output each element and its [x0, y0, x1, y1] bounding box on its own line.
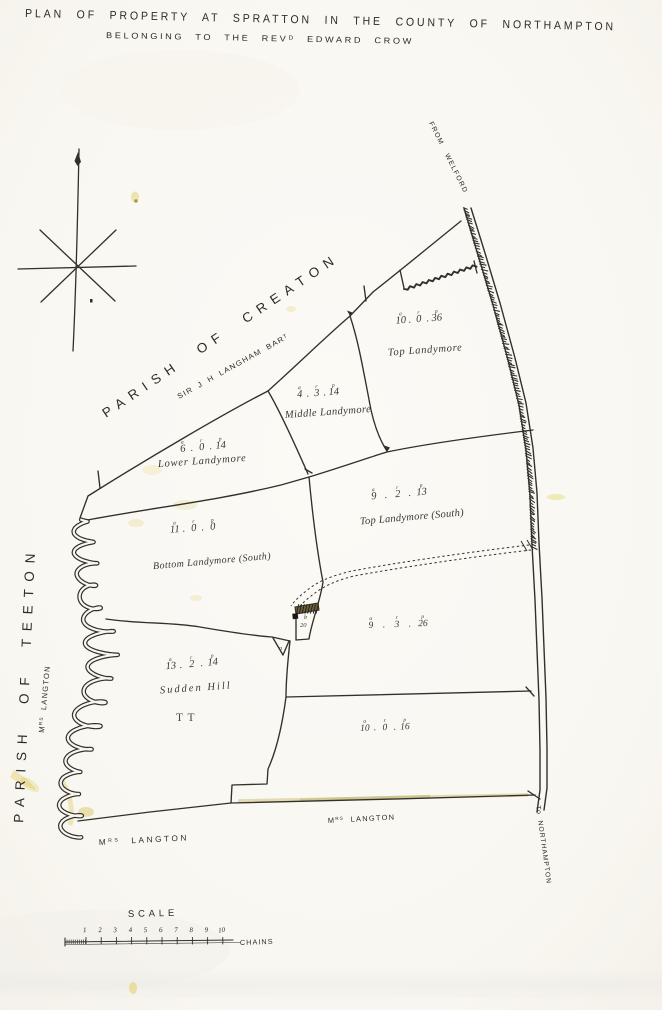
svg-text:a: a — [363, 719, 366, 725]
svg-text:TT: TT — [176, 712, 199, 724]
svg-text:.: . — [409, 620, 412, 630]
svg-text:26: 26 — [418, 619, 428, 629]
svg-text:b: b — [304, 615, 307, 621]
svg-text:CHAINS: CHAINS — [240, 937, 274, 947]
svg-text:SCALE: SCALE — [128, 908, 178, 920]
svg-text:0: 0 — [382, 723, 387, 733]
svg-text:3: 3 — [393, 620, 399, 630]
svg-text:a: a — [279, 646, 282, 652]
svg-text:9: 9 — [368, 621, 373, 631]
svg-text:10: 10 — [360, 724, 370, 734]
svg-text:a: a — [369, 616, 372, 622]
svg-text:20: 20 — [300, 622, 307, 629]
svg-text:p: p — [434, 309, 438, 315]
svg-text:p: p — [420, 614, 424, 620]
svg-text:p: p — [402, 717, 406, 723]
svg-text:.: . — [374, 723, 377, 733]
svg-text:10: 10 — [218, 926, 226, 935]
svg-text:.: . — [394, 723, 397, 733]
svg-text:p: p — [210, 518, 214, 524]
svg-text:p: p — [331, 383, 335, 389]
svg-text:16: 16 — [400, 722, 410, 732]
svg-text:.: . — [383, 620, 386, 630]
